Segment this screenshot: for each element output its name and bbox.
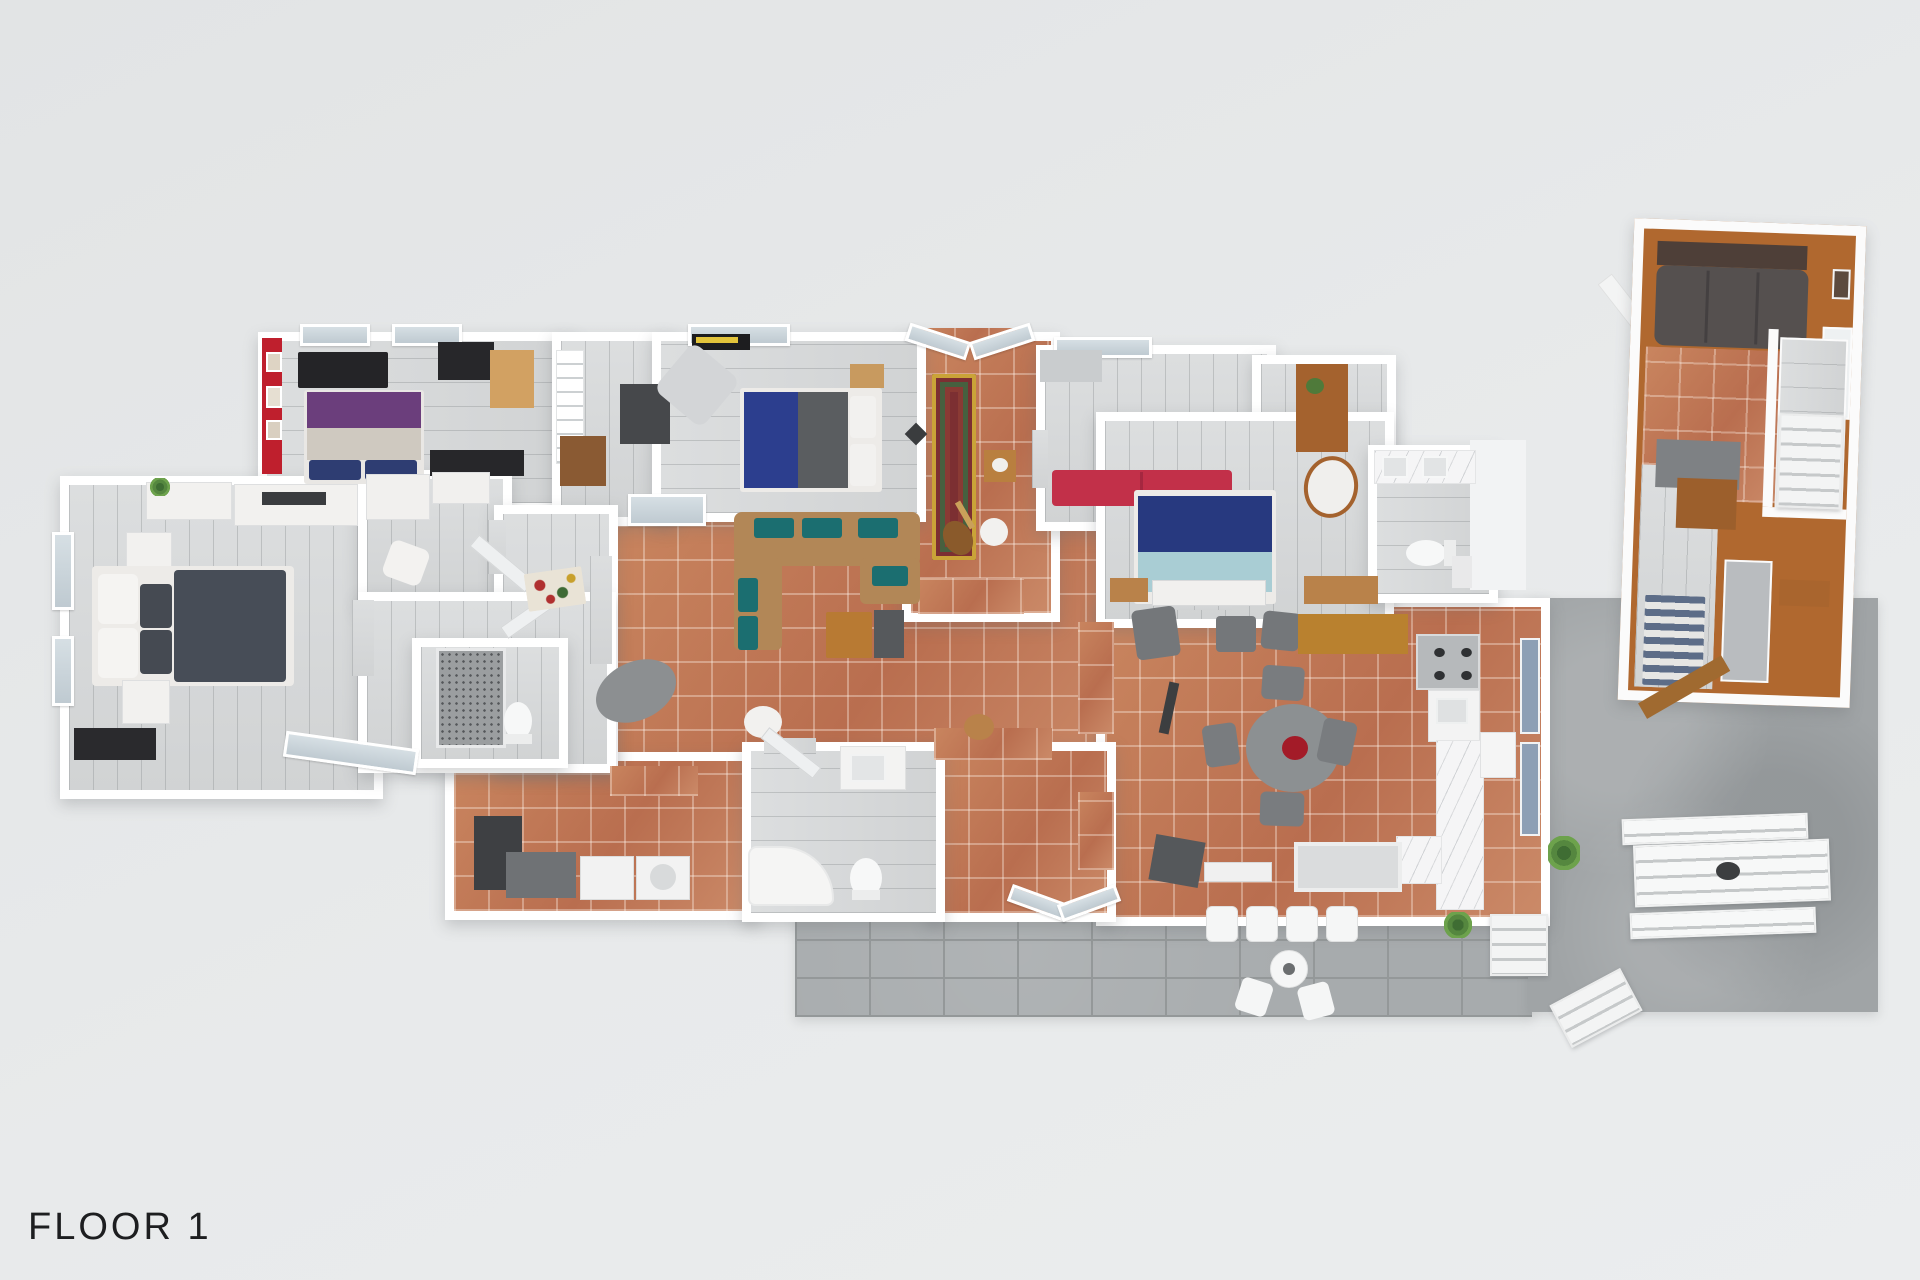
patio-chair-2 — [1246, 906, 1278, 942]
floor-label: FLOOR 1 — [28, 1206, 212, 1249]
stool-wood — [964, 714, 994, 740]
m-pillow-3 — [140, 584, 172, 628]
fire-bowl — [1283, 963, 1295, 975]
b3-nightstand — [850, 364, 884, 388]
g-picture-frame — [1832, 269, 1851, 300]
opening-entry-living — [918, 578, 1024, 614]
m-desk-plant — [150, 478, 170, 496]
coffee-table — [826, 612, 872, 658]
la-dryer-door — [650, 864, 676, 890]
k-plant — [1444, 912, 1472, 938]
la-chest — [506, 852, 576, 898]
opening-living-hall — [934, 728, 1052, 760]
nook-cabinet — [432, 472, 490, 504]
sofa-cushion-3 — [858, 518, 898, 538]
k-sideboard — [1298, 614, 1408, 654]
wall-frame-1 — [266, 352, 282, 372]
la-washer — [580, 856, 634, 900]
k-window-1 — [1520, 638, 1540, 734]
bath2-shelf — [1452, 556, 1472, 588]
b3-blanket-blue — [744, 392, 798, 488]
sofa-cushion-4 — [738, 578, 758, 612]
opening-living-hallA — [590, 556, 612, 664]
k-chair-2 — [1260, 610, 1302, 652]
patio-chair-3 — [1286, 906, 1318, 942]
roof-section — [1470, 440, 1526, 590]
g-door-gray — [1720, 559, 1772, 683]
hall-glass-panel — [628, 494, 706, 526]
m-blanket — [174, 570, 286, 682]
g-desk — [1779, 579, 1830, 607]
b4-dresser-foot — [1152, 580, 1266, 606]
k-radiator — [1204, 862, 1272, 882]
tv-cabinet — [874, 610, 904, 658]
closet-bookcase — [560, 436, 606, 486]
nook-desk — [366, 474, 430, 520]
b2-bed-blanket-purple — [307, 392, 421, 428]
opening-hall-kitchen — [1078, 792, 1114, 870]
b3-keyboard-keys — [696, 337, 738, 343]
bath2-toilet — [1406, 540, 1446, 566]
b2-bed-sheet — [307, 428, 421, 460]
b4-dresser-tall — [1296, 364, 1348, 452]
sofa-cushion-2 — [802, 518, 842, 538]
wall-frame-2 — [266, 386, 282, 408]
sofa-cushion-6 — [872, 566, 908, 586]
b2-wardrobe — [490, 350, 534, 408]
k-cabinet-dark — [1148, 834, 1205, 888]
m-tv — [262, 492, 326, 505]
bath1-toilet-tank — [852, 890, 880, 900]
picnic-centerpiece — [1716, 862, 1740, 880]
m-window-2 — [52, 636, 74, 706]
m-pillow-4 — [140, 630, 172, 674]
b2-desk — [438, 342, 494, 380]
b2-pillow-1 — [309, 460, 361, 480]
m-pillow-1 — [98, 574, 138, 624]
bath2-sink-1 — [1382, 456, 1408, 478]
m-media-unit — [74, 728, 156, 760]
b3-pillow-2 — [850, 444, 876, 486]
accessory-building — [1618, 218, 1867, 708]
patio-chair-1 — [1206, 906, 1238, 942]
sofa-cushion-1 — [754, 518, 794, 538]
bath3-shower — [436, 648, 506, 748]
dining-flowers — [1282, 736, 1308, 760]
g-stairs-steps — [1776, 413, 1843, 509]
g-dresser — [1676, 478, 1738, 530]
bath2-sink-2 — [1422, 456, 1448, 478]
dining-chair-n — [1261, 665, 1305, 702]
b3-blanket-gray — [798, 392, 848, 488]
bath1-sink — [850, 754, 886, 782]
m-tv-dresser — [234, 484, 358, 526]
m-window-1 — [52, 532, 74, 610]
b4-desk — [1304, 576, 1378, 604]
k-wall-oven — [1480, 732, 1516, 778]
hall-floral-rug — [524, 566, 587, 612]
b3-pillow-1 — [850, 396, 876, 438]
dining-chair-s — [1259, 791, 1304, 827]
opening-master-hallB — [352, 600, 374, 676]
k-counter-wing — [1396, 836, 1442, 884]
opening-living-laundry — [610, 766, 698, 796]
k-chair-1 — [1131, 605, 1182, 661]
k-sink — [1436, 698, 1468, 724]
dining-chair-w — [1201, 722, 1241, 768]
k-counter — [1436, 740, 1484, 910]
k-table-small — [1294, 842, 1402, 892]
k-stove — [1416, 634, 1480, 690]
patio-steps — [1490, 914, 1548, 976]
k-stool-pair — [1216, 616, 1256, 652]
b4-blanket-navy — [1138, 496, 1272, 552]
stool-white-1 — [980, 518, 1008, 546]
b2-dresser — [298, 352, 388, 388]
den-wardrobe — [1040, 350, 1102, 382]
m-pillow-2 — [98, 628, 138, 678]
opening-entry-den — [1032, 430, 1048, 488]
patio-chair-4 — [1326, 906, 1358, 942]
m-nightstand-2 — [122, 680, 170, 724]
sofa-cushion-5 — [738, 616, 758, 650]
bath3-toilet-tank — [504, 734, 532, 744]
entry-bowl — [992, 458, 1008, 472]
patio-plant — [1548, 836, 1580, 870]
wall-frame-3 — [266, 420, 282, 440]
opening-living-kitchen — [1078, 622, 1114, 734]
k-window-2 — [1520, 742, 1540, 836]
b2-window-1 — [300, 324, 370, 346]
b4-dresser-plant — [1306, 378, 1324, 394]
floor-plan — [0, 0, 1920, 1280]
b4-nightstand — [1110, 578, 1148, 602]
